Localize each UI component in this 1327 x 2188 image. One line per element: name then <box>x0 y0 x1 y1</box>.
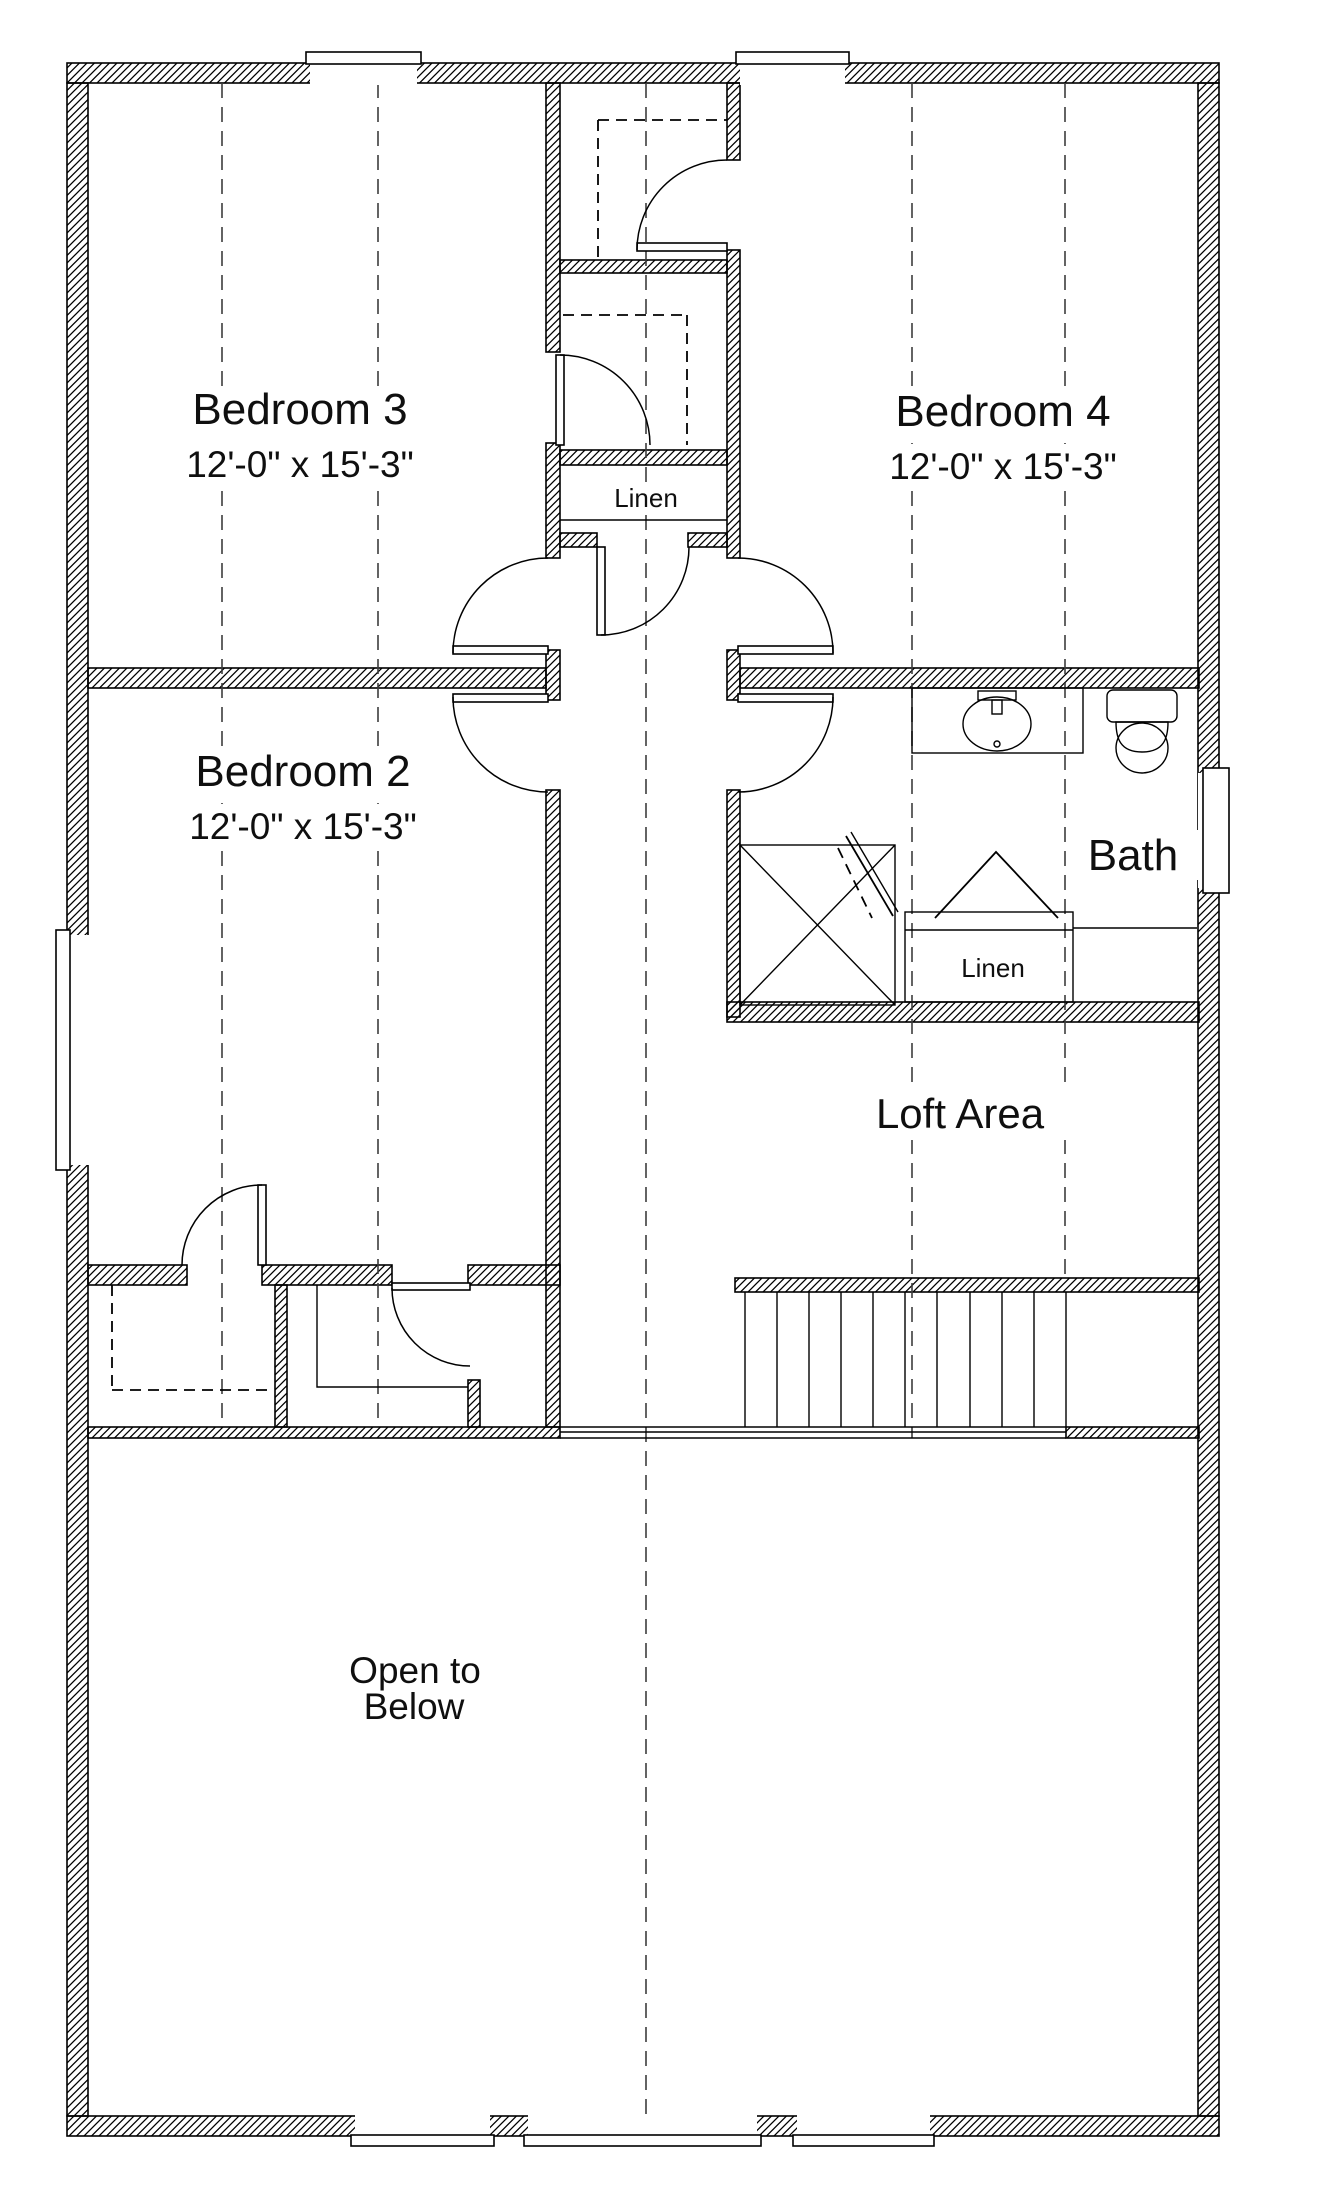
exterior-wall-top <box>67 63 1219 83</box>
closet-label-bath-linen: Linen <box>961 953 1025 983</box>
window-top-left-sill <box>306 52 421 64</box>
door-bedroom2 <box>453 694 548 702</box>
wall-bed2-south <box>88 1265 187 1285</box>
room-label-open-to-below-line1: Open to <box>349 1650 481 1691</box>
wall-hall-west <box>546 83 560 352</box>
wall-closet-stub <box>468 1380 480 1427</box>
door-hall-linen <box>597 547 605 635</box>
floor-plan: Bedroom 3 12'-0" x 15'-3" Bedroom 4 12'-… <box>0 0 1327 2188</box>
room-labels: Bedroom 3 12'-0" x 15'-3" Bedroom 4 12'-… <box>186 385 1178 1727</box>
door-bath <box>738 694 833 702</box>
room-label-bath: Bath <box>1088 831 1179 880</box>
door-swing-bedroom4 <box>738 558 833 653</box>
wall-linen-stub-east <box>688 533 727 547</box>
stair-treads <box>745 1292 1066 1427</box>
room-dim-bedroom-2: 12'-0" x 15'-3" <box>189 806 417 847</box>
room-label-open-to-below-line2: Below <box>364 1686 465 1727</box>
wall-hall-east <box>727 83 740 160</box>
room-label-loft: Loft Area <box>876 1090 1045 1137</box>
wall-hall-west <box>546 443 560 558</box>
wall-hall-west <box>546 790 560 1427</box>
toilet <box>1107 690 1177 773</box>
bifold-door <box>935 852 1058 918</box>
wall-bed4-bath <box>740 668 1199 688</box>
door-swing-bed3-closet <box>560 355 650 445</box>
window-top-right-sill <box>736 52 849 64</box>
door-swing-hall-linen <box>601 547 689 635</box>
wall-hall-west <box>546 650 560 700</box>
wall-bed2-south <box>468 1265 560 1285</box>
door-swing-bath <box>738 697 833 792</box>
door-swing-bedroom2 <box>453 697 548 792</box>
wall-closet-divider-south <box>275 1285 287 1427</box>
shower <box>740 832 898 1005</box>
wall-stair-south-stub <box>1066 1427 1199 1438</box>
wall-bed2-south <box>262 1265 392 1285</box>
door-bedroom4 <box>738 646 833 654</box>
wall-closet-divider <box>560 260 727 273</box>
door-swing-bedroom3 <box>453 558 548 653</box>
window-bottom-2 <box>528 2115 757 2137</box>
window-bottom-1 <box>355 2115 490 2137</box>
wall-loft-south <box>88 1427 560 1438</box>
window-bottom-1-sill <box>351 2135 494 2146</box>
shelf-line-bed2-closet <box>112 1285 273 1390</box>
exterior-wall-right <box>1198 83 1219 2116</box>
window-bottom-2-sill <box>524 2135 761 2146</box>
room-dim-bedroom-3: 12'-0" x 15'-3" <box>186 444 414 485</box>
vanity-sink <box>912 688 1083 753</box>
door-bedroom3 <box>453 646 548 654</box>
wall-bath-west <box>727 790 740 1017</box>
door-bed4-closet <box>637 243 727 251</box>
wall-hall-east <box>727 650 740 700</box>
door-bed2-closet <box>258 1185 266 1265</box>
wall-stair-north <box>735 1278 1199 1292</box>
room-label-bedroom-2: Bedroom 2 <box>195 747 410 796</box>
window-right-sill <box>1203 768 1229 893</box>
window-bottom-3 <box>797 2115 930 2137</box>
loft-railing <box>560 1427 1066 1438</box>
shelf-line-bed4-closet <box>598 120 727 260</box>
wall-bed3-bed2 <box>88 668 546 688</box>
door-swing-lower-closet <box>392 1288 470 1366</box>
wall-linen-north <box>560 450 727 465</box>
door-bed3-closet <box>556 355 564 445</box>
room-label-bedroom-4: Bedroom 4 <box>895 387 1110 436</box>
window-left-sill <box>56 930 70 1170</box>
room-label-bedroom-3: Bedroom 3 <box>192 385 407 434</box>
wall-linen-stub-west <box>560 533 597 547</box>
room-dim-bedroom-4: 12'-0" x 15'-3" <box>889 446 1117 487</box>
door-lower-closet <box>392 1283 470 1290</box>
wall-hall-east <box>727 250 740 558</box>
staircase <box>560 1292 1066 1438</box>
closet-label-hall-linen: Linen <box>614 483 678 513</box>
label-underlays <box>140 386 1201 1728</box>
shelf-line-bed3-closet <box>563 315 687 445</box>
window-bottom-3-sill <box>793 2135 934 2146</box>
door-swing-bed4-closet <box>637 160 727 250</box>
